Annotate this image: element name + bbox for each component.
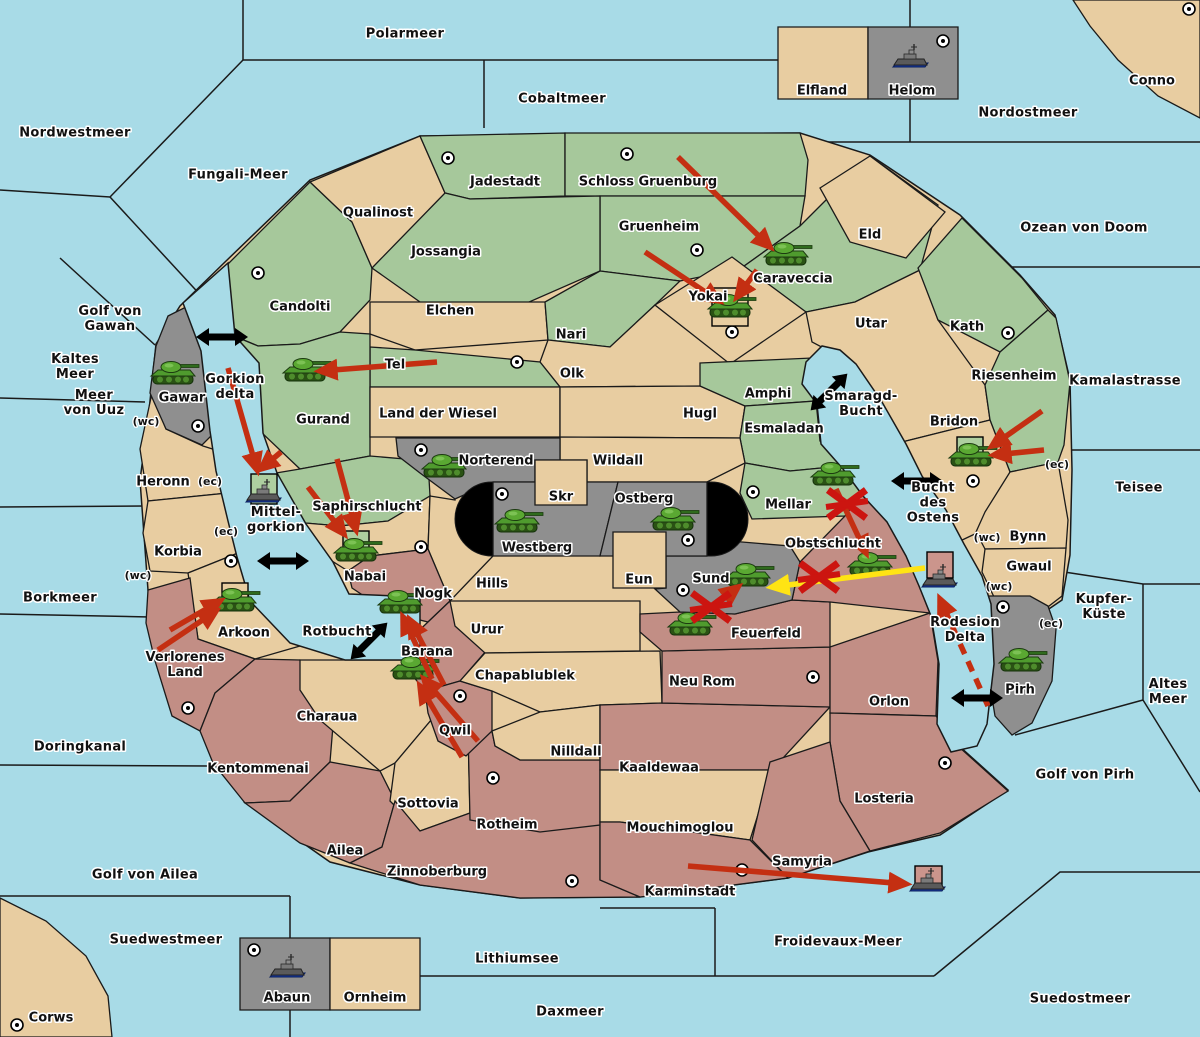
territory-label: Eld [859, 228, 882, 243]
territory-label: Orlon [869, 695, 909, 710]
supply-center-dot [415, 444, 427, 456]
territory-label: Zinnoberburg [387, 865, 487, 880]
territory-label: Ostberg [615, 492, 674, 507]
supply-center-dot [511, 356, 523, 368]
territory-label: Losteria [854, 792, 914, 807]
territory-label: Korbia [154, 545, 202, 560]
territory-label: Riesenheim [971, 369, 1056, 384]
territory-label: Yokai [687, 290, 727, 305]
sea-label: Altes [1149, 677, 1188, 692]
territory-label: Nilldall [550, 745, 601, 760]
supply-center-dot [252, 267, 264, 279]
territory-label: Feuerfeld [731, 627, 801, 642]
sea-label: Meer [1149, 692, 1187, 707]
sea-label: Daxmeer [536, 1005, 604, 1020]
sea-label: Golf von Ailea [92, 868, 198, 883]
territory-label: Esmaladan [744, 422, 824, 437]
territory-label: Qualinost [343, 206, 413, 221]
sea-label: Bucht [911, 481, 955, 496]
sea-label: Golf von [78, 304, 141, 319]
territory-label: Hills [476, 577, 508, 592]
territory-label: Chapablublek [475, 669, 575, 684]
supply-center-dot [807, 671, 819, 683]
territory-label: Ornheim [344, 991, 407, 1006]
coast-tag: (ec) [1039, 617, 1063, 630]
territory-label: Tel [385, 358, 405, 373]
territory-label: Wildall [593, 454, 643, 469]
sea-label: Ozean von Doom [1020, 221, 1148, 236]
sea-label: Kamalastrasse [1069, 374, 1181, 389]
sea-label: Mittel- [251, 505, 302, 520]
sea-label: Froidevaux-Meer [774, 935, 902, 950]
coast-tag: (ec) [1045, 458, 1069, 471]
territory-label: Hugl [683, 407, 717, 422]
territory-label: Urur [471, 623, 504, 638]
territory-label: Neu Rom [669, 675, 735, 690]
sea-label: Golf von Pirh [1036, 768, 1135, 783]
territory-label: Helom [889, 84, 936, 99]
territory-label: Conno [1129, 74, 1175, 89]
sea-label: Polarmeer [366, 27, 445, 42]
territory-label: Jossangia [410, 245, 481, 260]
territory-label: Obstschlucht [785, 537, 881, 552]
territory-label: Kaaldewaa [619, 761, 699, 776]
supply-center-dot [747, 486, 759, 498]
territory-label: Skr [549, 490, 574, 505]
supply-center-dot [182, 702, 194, 714]
territory-label: Schloss Gruenburg [579, 175, 717, 190]
sea-label: Bucht [839, 404, 883, 419]
sea-label: Meer [56, 367, 94, 382]
sea-label: Gawan [85, 319, 136, 334]
supply-center-dot [691, 244, 703, 256]
territory-label: Gwaul [1006, 560, 1051, 575]
territory-label: Arkoon [218, 626, 270, 641]
sea-label: Teisee [1115, 481, 1163, 496]
supply-center-dot [997, 601, 1009, 613]
supply-center-dot [415, 541, 427, 553]
supply-center-dot [1002, 327, 1014, 339]
territory-label: Karminstadt [645, 885, 736, 900]
territory-label: Gurand [296, 413, 350, 428]
sea-label: Kaltes [51, 352, 99, 367]
supply-center-dot [939, 757, 951, 769]
territory-label: Land der Wiesel [379, 407, 497, 422]
territory-label: Caraveccia [753, 272, 832, 287]
territory-label: Candolti [270, 300, 331, 315]
territory-label: Elfland [797, 84, 847, 99]
supply-center-dot [487, 772, 499, 784]
sea-label: Delta [945, 630, 986, 645]
territory-label: Land [167, 665, 203, 680]
coast-tag: (wc) [974, 531, 1001, 544]
territory-label: Norterend [458, 454, 533, 469]
supply-center-dot [621, 148, 633, 160]
territory-label: Saphirschlucht [312, 500, 421, 515]
territory-label: Qwil [439, 724, 471, 739]
supply-center-dot [442, 152, 454, 164]
supply-center-dot [682, 534, 694, 546]
sea-label: Borkmeer [23, 591, 97, 606]
sea-label: Gorkion [205, 372, 264, 387]
sea-label: Doringkanal [34, 740, 126, 755]
territory-label: Abaun [264, 991, 311, 1006]
coast-tag: (wc) [986, 580, 1013, 593]
territory-label: Kath [950, 320, 984, 335]
sea-label: Cobaltmeer [518, 92, 606, 107]
sea-label: Suedostmeer [1030, 992, 1131, 1007]
territory-label: Gruenheim [619, 220, 699, 235]
territory-label: Amphi [745, 387, 792, 402]
sea-label: Rodesion [930, 615, 1000, 630]
sea-label: Fungali-Meer [188, 168, 288, 183]
supply-center-dot [566, 875, 578, 887]
sea-label: Ostens [907, 511, 960, 526]
supply-center-dot [1183, 3, 1195, 15]
territory-label: Mouchimoglou [627, 821, 734, 836]
territory-label: Kentommenai [207, 762, 308, 777]
sea-label: von Uuz [64, 403, 125, 418]
territory-label: Sottovia [397, 797, 458, 812]
game-map[interactable]: CandoltiQualinostJadestadtSchloss Gruenb… [0, 0, 1200, 1037]
territory-label: Bridon [930, 415, 978, 430]
sea-label: Nordostmeer [978, 106, 1078, 121]
territory-label: Verlorenes [145, 650, 224, 665]
sea-label: Kupfer- [1076, 592, 1133, 607]
supply-center-dot [192, 420, 204, 432]
supply-center-dot [225, 555, 237, 567]
territory-label: Mellar [765, 498, 811, 513]
territory-label: Elchen [426, 304, 474, 319]
territory-label: Heronn [136, 475, 190, 490]
supply-center-dot [937, 35, 949, 47]
territory-label: Bynn [1010, 530, 1047, 545]
territory-label: Rotheim [476, 818, 537, 833]
sea-label: Lithiumsee [475, 952, 559, 967]
territory-label: Jadestadt [469, 175, 540, 190]
supply-center-dot [454, 690, 466, 702]
sea-label: Smaragd- [824, 389, 897, 404]
territory-label: Samyria [772, 855, 832, 870]
territory-label: Ailea [327, 844, 364, 859]
sea-label: Nordwestmeer [19, 126, 131, 141]
territory-label: Westberg [502, 541, 572, 556]
sea-border [0, 765, 210, 766]
supply-center-dot [496, 488, 508, 500]
coast-tag: (wc) [125, 569, 152, 582]
coast-tag: (wc) [133, 415, 160, 428]
territory-label: Sund [692, 572, 729, 587]
sea-label: Suedwestmeer [110, 933, 223, 948]
territory-label: Utar [855, 317, 888, 332]
territory-label: Pirh [1005, 683, 1035, 698]
sea-label: Rotbucht [302, 625, 371, 640]
sea-label: gorkion [247, 520, 305, 535]
sea-label: delta [215, 387, 254, 402]
territory-label: Nari [556, 328, 587, 343]
sea-border [0, 506, 145, 507]
territory-label: Barana [401, 645, 453, 660]
territory-wildall[interactable] [560, 437, 745, 482]
wargame-map-screen: CandoltiQualinostJadestadtSchloss Gruenb… [0, 0, 1200, 1037]
supply-center-dot [677, 584, 689, 596]
sea-label: Küste [1082, 607, 1125, 622]
territory-label: Charaua [297, 710, 358, 725]
coast-tag: (ec) [214, 525, 238, 538]
supply-center-dot [726, 326, 738, 338]
territory-label: Corws [29, 1011, 74, 1026]
territory-label: Nabai [344, 570, 386, 585]
sea-label: Meer [75, 388, 113, 403]
coast-tag: (ec) [198, 475, 222, 488]
supply-center-dot [11, 1019, 23, 1031]
territory-label: Gawar [159, 391, 206, 406]
supply-center-dot [248, 944, 260, 956]
supply-center-dot [967, 475, 979, 487]
territory-label: Nogk [414, 587, 452, 602]
territory-label: Eun [625, 573, 652, 588]
sea-label: des [920, 496, 947, 511]
territory-label: Olk [560, 367, 585, 382]
